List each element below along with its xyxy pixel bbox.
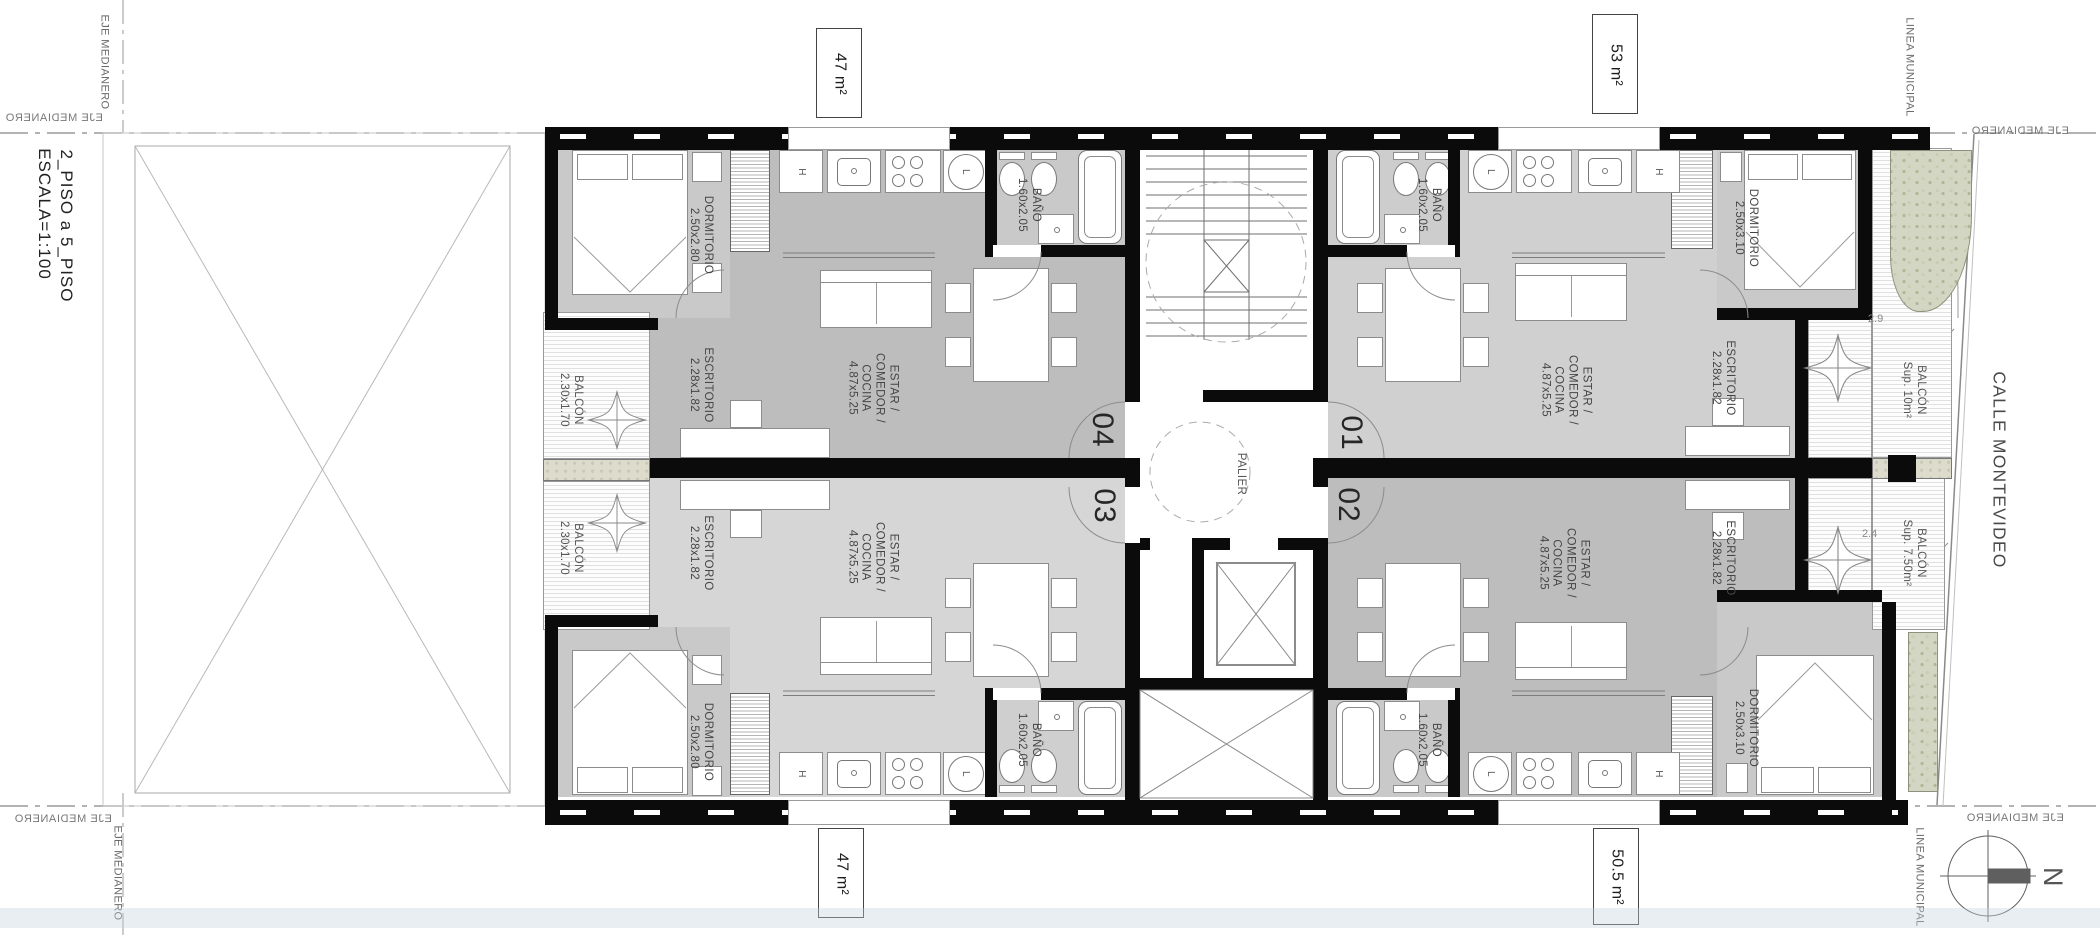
eje-medianero-bottom-left: EJE MEDIANERO	[14, 813, 112, 825]
area-label-bottom-left: 47 m²	[818, 828, 864, 918]
apt01-oven-letter: H	[1652, 168, 1664, 176]
unit-01: 01	[1333, 415, 1369, 450]
apt03-escritorio-label: ESCRITORIO2.28x1.82	[686, 515, 714, 590]
plan-title: 2_PISO a 5_PISO	[56, 150, 76, 303]
apt04-bano-label: BAÑO1.60x2.05	[1014, 178, 1042, 232]
apt04-oven-letter: H	[795, 168, 807, 176]
apt02-balcon-width-dim: 2.4	[1862, 528, 1877, 540]
eje-medianero-top-vertical: EJE MEDIANERO	[97, 14, 110, 109]
linea-municipal-top: LINEA MUNICIPAL	[1902, 17, 1915, 116]
apt01-bano-label: BAÑO1.60x2.05	[1414, 178, 1442, 232]
palier-label: PALIER	[1233, 453, 1247, 495]
unit-03: 03	[1086, 488, 1122, 523]
area-label-top-left: 47 m²	[816, 28, 862, 118]
calle-montevideo: CALLE MONTEVIDEO	[1989, 371, 2010, 568]
apt01-balcon-width-dim: 2.9	[1868, 313, 1883, 325]
apt02-balcon-label: BALCÓNSup. 7.50m²	[1899, 519, 1927, 586]
eje-medianero-top-left: EJE MEDIANERO	[5, 112, 103, 124]
eje-medianero-top-right: EJE MEDIANERO	[1971, 125, 2069, 137]
apt04-escritorio-label: ESCRITORIO2.28x1.82	[686, 347, 714, 422]
north-letter: N	[2037, 867, 2069, 887]
apt03-fridge-letter: L	[959, 771, 971, 777]
floor-plan: EJE MEDIANERO EJE MEDIANERO EJE MEDIANER…	[0, 0, 2100, 950]
apt03-bano-label: BAÑO1.60x2.05	[1014, 713, 1042, 767]
apt03-estar-label: ESTAR /COMEDOR /COCINA4.87x5.25	[844, 522, 899, 592]
apt01-escritorio-label: ESCRITORIO2.28x1.82	[1708, 340, 1736, 415]
apt04-fridge-letter: L	[959, 169, 971, 175]
apt03-oven-letter: H	[795, 770, 807, 778]
apt03-balcon-label: BALCÓN2.30x1.70	[556, 521, 584, 575]
apt03-dormitorio-label: DORMITORIO2.50x2.80	[686, 703, 714, 782]
area-label-top-right: 53 m²	[1592, 14, 1638, 114]
apt02-dormitorio-label: DORMITORIO2.50x3.10	[1731, 689, 1759, 768]
plan-scale: ESCALA=1:100	[34, 148, 54, 280]
plant-ornament	[589, 335, 1872, 593]
unit-04: 04	[1084, 412, 1120, 447]
scan-artifact-strip	[0, 908, 2100, 928]
apt01-fridge-letter: L	[1484, 169, 1496, 175]
apt02-escritorio-label: ESCRITORIO2.28x1.82	[1708, 520, 1736, 595]
apt01-balcon-label: BALCÓNSup. 10m²	[1899, 362, 1927, 419]
apt04-dormitorio-label: DORMITORIO2.50x2.80	[686, 196, 714, 275]
apt01-dormitorio-label: DORMITORIO2.50x3.10	[1731, 189, 1759, 268]
detail-linework	[0, 0, 2100, 950]
apt02-fridge-letter: L	[1484, 771, 1496, 777]
apt02-oven-letter: H	[1652, 770, 1664, 778]
apt04-balcon-label: BALCÓN2.30x1.70	[556, 373, 584, 427]
apt01-estar-label: ESTAR /COMEDOR /COCINA4.87x5.25	[1537, 355, 1592, 425]
eje-medianero-bottom-right: EJE MEDIANERO	[1966, 812, 2064, 824]
eje-medianero-bottom-vertical: EJE MEDIANERO	[110, 825, 123, 920]
apt02-estar-label: ESTAR /COMEDOR /COCINA4.87x5.25	[1535, 528, 1590, 598]
unit-02: 02	[1330, 487, 1366, 522]
apt04-estar-label: ESTAR /COMEDOR /COCINA4.87x5.25	[844, 353, 899, 423]
apt02-bano-label: BAÑO1.60x2.05	[1414, 713, 1442, 767]
